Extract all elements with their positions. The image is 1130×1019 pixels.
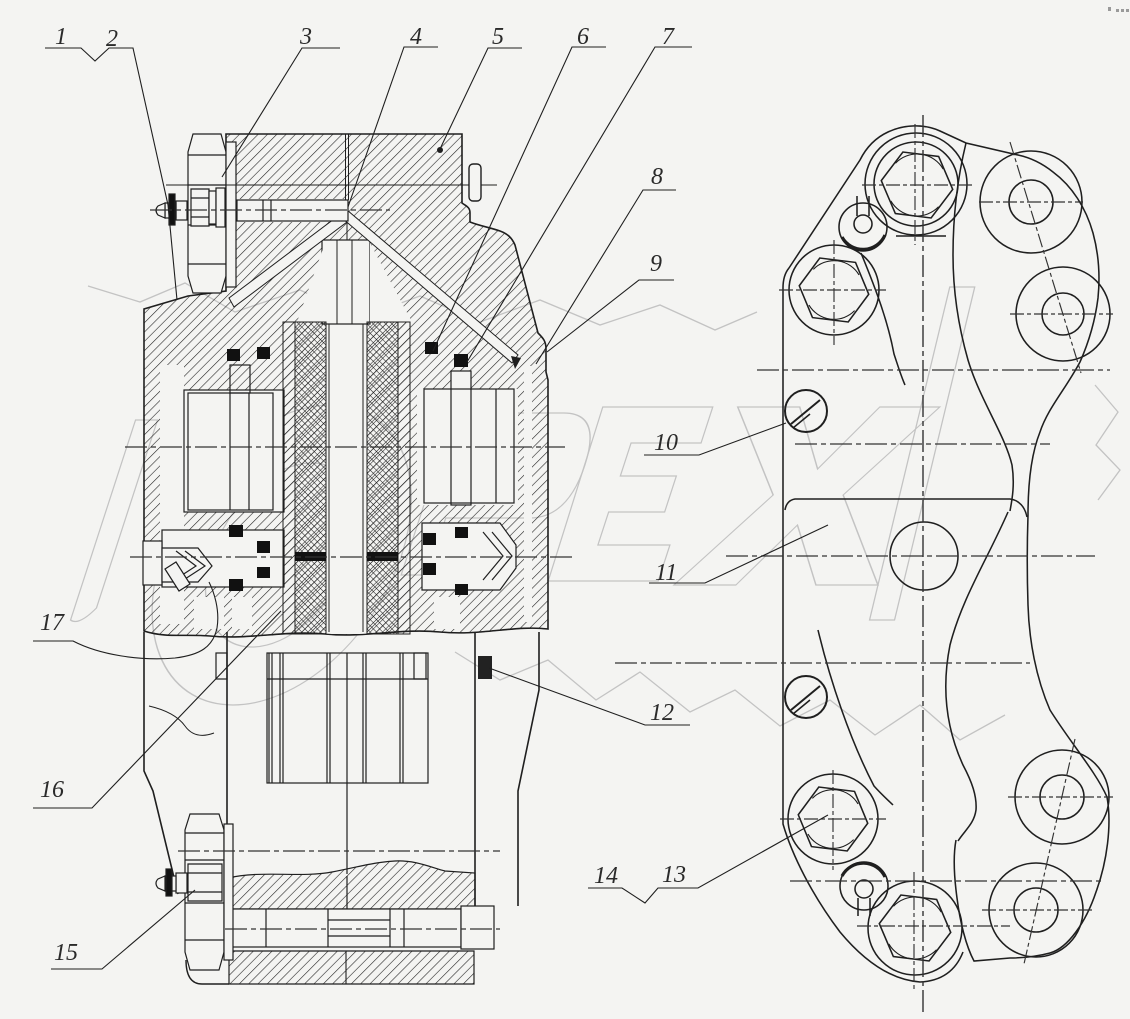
svg-text:9: 9 bbox=[650, 251, 662, 277]
svg-text:13: 13 bbox=[662, 862, 686, 888]
svg-text:2: 2 bbox=[106, 26, 118, 52]
svg-text:5: 5 bbox=[492, 24, 504, 50]
svg-text:10: 10 bbox=[654, 430, 678, 456]
svg-text:6: 6 bbox=[577, 24, 589, 50]
svg-text:17: 17 bbox=[40, 610, 65, 636]
svg-text:12: 12 bbox=[650, 700, 674, 726]
svg-text:1: 1 bbox=[55, 24, 67, 50]
svg-text:15: 15 bbox=[54, 940, 78, 966]
svg-text:16: 16 bbox=[40, 777, 64, 803]
svg-text:11: 11 bbox=[655, 560, 677, 586]
svg-text:4: 4 bbox=[410, 24, 422, 50]
svg-text:14: 14 bbox=[594, 863, 618, 889]
svg-text:8: 8 bbox=[651, 164, 663, 190]
svg-text:3: 3 bbox=[299, 24, 312, 50]
svg-text:7: 7 bbox=[662, 24, 675, 50]
